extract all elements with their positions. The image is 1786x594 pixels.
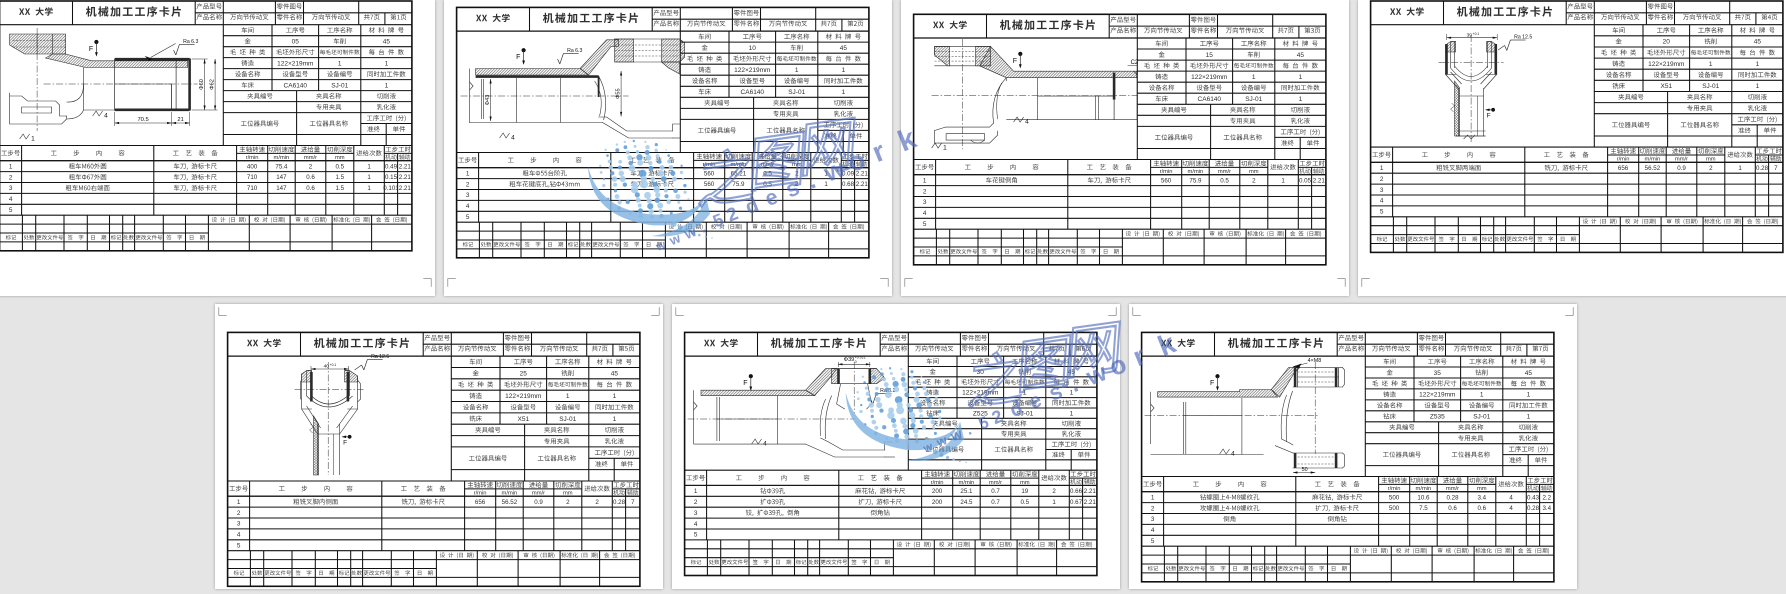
svg-text:3: 3 (9, 185, 13, 192)
svg-text:1: 1 (1480, 392, 1484, 399)
svg-text:Φ62: Φ62 (210, 79, 216, 90)
svg-text:1: 1 (613, 416, 617, 423)
svg-text:7: 7 (631, 499, 635, 506)
svg-text:0.6: 0.6 (307, 185, 316, 192)
svg-text:45: 45 (611, 370, 619, 377)
svg-text:SJ-01: SJ-01 (559, 416, 576, 423)
svg-text:3: 3 (1380, 187, 1384, 194)
svg-text:45: 45 (840, 45, 848, 52)
svg-text:25.1: 25.1 (960, 488, 973, 495)
svg-text:2: 2 (795, 170, 799, 177)
svg-text:2.21: 2.21 (856, 181, 869, 188)
svg-text:2.21: 2.21 (399, 174, 412, 181)
svg-text:0.28: 0.28 (613, 499, 626, 506)
svg-text:147: 147 (277, 174, 288, 181)
svg-text:40: 40 (324, 364, 330, 370)
svg-text:Φ43: Φ43 (485, 95, 491, 106)
svg-text:3: 3 (466, 192, 470, 199)
svg-text:656: 656 (475, 499, 486, 506)
svg-text:mm/r: mm/r (761, 162, 774, 168)
svg-text:m/min: m/min (502, 491, 518, 497)
svg-text:C2: C2 (1131, 60, 1139, 66)
svg-text:1: 1 (1070, 410, 1074, 417)
svg-text:4: 4 (1509, 505, 1513, 512)
svg-text:2.21: 2.21 (399, 163, 412, 170)
svg-text:122×219mm: 122×219mm (278, 60, 314, 67)
svg-text:05: 05 (292, 38, 300, 45)
svg-text:2.21: 2.21 (1313, 177, 1326, 184)
svg-text:45: 45 (1525, 370, 1533, 377)
svg-text:25: 25 (520, 370, 528, 377)
svg-text:1: 1 (824, 170, 828, 177)
svg-text:m/min: m/min (731, 162, 747, 168)
svg-text:4: 4 (694, 521, 698, 528)
svg-text:3: 3 (694, 510, 698, 517)
svg-text:2: 2 (1151, 505, 1155, 512)
svg-text:2: 2 (595, 499, 599, 506)
svg-text:0.5: 0.5 (1020, 499, 1029, 506)
svg-text:CA6140: CA6140 (284, 82, 308, 89)
svg-text:0.15: 0.15 (385, 174, 398, 181)
svg-text:0.5: 0.5 (1220, 177, 1229, 184)
svg-text:75.4: 75.4 (276, 163, 289, 170)
svg-text:0.05: 0.05 (1299, 177, 1312, 184)
svg-text:r/min: r/min (474, 491, 487, 497)
svg-text:1: 1 (1299, 74, 1303, 81)
svg-text:1: 1 (1052, 499, 1056, 506)
svg-text:710: 710 (247, 174, 258, 181)
svg-text:Ra 6.3: Ra 6.3 (567, 48, 582, 54)
svg-text:1.5: 1.5 (336, 185, 345, 192)
svg-text:Z535: Z535 (1430, 414, 1445, 421)
svg-text:+0.021: +0.021 (855, 355, 866, 359)
svg-text:147: 147 (277, 185, 288, 192)
svg-text:1: 1 (1151, 494, 1155, 501)
svg-text:1: 1 (385, 82, 389, 89)
svg-text:SJ-01: SJ-01 (1016, 410, 1033, 417)
svg-text:1: 1 (368, 185, 372, 192)
svg-text:122×219mm: 122×219mm (962, 390, 998, 397)
svg-text:m/min: m/min (1188, 169, 1204, 175)
svg-text:0.66: 0.66 (1070, 488, 1083, 495)
svg-text:CA6140: CA6140 (741, 89, 765, 96)
svg-text:F: F (1487, 113, 1491, 120)
svg-text:19: 19 (1021, 488, 1028, 495)
svg-text:1: 1 (1252, 74, 1256, 81)
svg-text:45: 45 (1068, 369, 1076, 376)
svg-text:1: 1 (385, 60, 389, 67)
svg-text:2: 2 (1052, 488, 1056, 495)
svg-text:0: 0 (855, 360, 857, 364)
svg-text:0.28: 0.28 (1446, 494, 1459, 501)
svg-text:7: 7 (1774, 165, 1778, 172)
svg-text:500: 500 (1389, 505, 1400, 512)
svg-text:Ra 12.5: Ra 12.5 (1514, 35, 1532, 41)
svg-text:75.9: 75.9 (732, 181, 745, 188)
svg-text:2: 2 (923, 188, 927, 195)
svg-text:4: 4 (105, 113, 109, 120)
svg-text:45: 45 (383, 38, 391, 45)
svg-text:mm/r: mm/r (989, 480, 1002, 486)
svg-text:2: 2 (694, 499, 698, 506)
svg-text:SJ-01: SJ-01 (788, 89, 805, 96)
svg-text:30: 30 (977, 369, 985, 376)
svg-text:1: 1 (1756, 83, 1760, 90)
svg-text:r/min: r/min (703, 162, 716, 168)
svg-text:4: 4 (1025, 119, 1029, 126)
svg-text:mm: mm (1706, 157, 1716, 163)
svg-text:r/min: r/min (246, 155, 259, 161)
svg-text:20: 20 (1663, 39, 1671, 46)
svg-text:39: 39 (1467, 33, 1473, 39)
svg-text:5: 5 (923, 221, 927, 228)
svg-text:7.5: 7.5 (1419, 505, 1428, 512)
svg-text:5: 5 (237, 543, 241, 550)
svg-text:45: 45 (1754, 39, 1762, 46)
svg-text:CA6140: CA6140 (1198, 96, 1222, 103)
svg-text:122×219mm: 122×219mm (1419, 392, 1455, 399)
svg-text:122×219mm: 122×219mm (1191, 74, 1227, 81)
svg-text:0.6: 0.6 (1477, 505, 1486, 512)
svg-text:5: 5 (1380, 209, 1384, 216)
svg-text:X51: X51 (1661, 83, 1673, 90)
svg-text:0.9: 0.9 (534, 499, 543, 506)
svg-text:10.6: 10.6 (1417, 494, 1430, 501)
svg-text:2.21: 2.21 (856, 170, 869, 177)
svg-text:4: 4 (1509, 494, 1513, 501)
svg-text:3: 3 (237, 521, 241, 528)
svg-text:4: 4 (511, 135, 515, 142)
svg-text:4: 4 (763, 441, 767, 448)
svg-text:F: F (1210, 380, 1214, 387)
svg-text:0.43: 0.43 (1527, 494, 1540, 501)
svg-text:2: 2 (566, 499, 570, 506)
svg-text:Ra 3.2: Ra 3.2 (880, 388, 895, 394)
svg-text:1: 1 (943, 145, 947, 152)
svg-text:4: 4 (1380, 198, 1384, 205)
svg-text:SJ-01: SJ-01 (1702, 83, 1719, 90)
svg-text:0.28: 0.28 (1756, 165, 1769, 172)
svg-text:500: 500 (1389, 494, 1400, 501)
svg-text:SJ-01: SJ-01 (1245, 96, 1262, 103)
svg-text:mm/r: mm/r (532, 491, 545, 497)
svg-text:1: 1 (923, 177, 927, 184)
svg-text:0.5: 0.5 (763, 181, 772, 188)
svg-text:1: 1 (1023, 390, 1027, 397)
svg-text:1.5: 1.5 (336, 174, 345, 181)
svg-text:mm/r: mm/r (1218, 169, 1231, 175)
svg-text:5: 5 (1151, 538, 1155, 545)
svg-text:1: 1 (237, 499, 241, 506)
svg-text:0.28: 0.28 (1527, 505, 1540, 512)
svg-text:r/min: r/min (1388, 486, 1401, 492)
svg-text:r/min: r/min (1160, 169, 1173, 175)
svg-text:1: 1 (1299, 96, 1303, 103)
svg-text:560: 560 (704, 181, 715, 188)
svg-text:0.101: 0.101 (384, 185, 400, 192)
svg-text:3.4: 3.4 (1477, 494, 1486, 501)
svg-text:1: 1 (1756, 61, 1760, 68)
svg-text:4: 4 (237, 532, 241, 539)
svg-text:0.6: 0.6 (1448, 505, 1457, 512)
svg-text:mm: mm (792, 162, 802, 168)
svg-text:1: 1 (694, 488, 698, 495)
svg-text:1: 1 (338, 60, 342, 67)
svg-text:m/min: m/min (959, 480, 975, 486)
svg-text:0.9: 0.9 (1677, 165, 1686, 172)
svg-text:1: 1 (1527, 414, 1531, 421)
svg-text:1: 1 (9, 163, 13, 170)
svg-text:Ra 12.5: Ra 12.5 (371, 354, 389, 360)
svg-text:X51: X51 (518, 416, 530, 423)
svg-text:200: 200 (932, 488, 943, 495)
svg-text:1: 1 (613, 393, 617, 400)
svg-text:2: 2 (9, 174, 13, 181)
svg-text:5: 5 (694, 532, 698, 539)
svg-text:122×219mm: 122×219mm (505, 393, 541, 400)
svg-text:Ra 6.3: Ra 6.3 (184, 39, 199, 45)
svg-text:1: 1 (1070, 390, 1074, 397)
svg-text:r/min: r/min (1617, 157, 1630, 163)
svg-text:1: 1 (1281, 177, 1285, 184)
svg-text:200: 200 (932, 499, 943, 506)
svg-text:1: 1 (795, 67, 799, 74)
svg-text:Φ60: Φ60 (200, 79, 206, 90)
svg-text:4: 4 (1231, 451, 1235, 458)
svg-text:mm: mm (1477, 486, 1487, 492)
svg-text:+0.1: +0.1 (330, 363, 337, 367)
svg-text:0.7: 0.7 (991, 499, 1000, 506)
svg-text:4: 4 (1151, 527, 1155, 534)
svg-text:SJ-01: SJ-01 (1473, 414, 1490, 421)
svg-text:mm: mm (563, 491, 573, 497)
svg-text:710: 710 (247, 185, 258, 192)
svg-text:0.5: 0.5 (336, 163, 345, 170)
svg-text:5: 5 (466, 214, 470, 221)
svg-text:122×219mm: 122×219mm (734, 67, 770, 74)
svg-text:2.21: 2.21 (399, 185, 412, 192)
svg-text:F: F (516, 54, 520, 61)
svg-text:2: 2 (237, 510, 241, 517)
svg-text:0.68: 0.68 (842, 181, 855, 188)
svg-text:65.21: 65.21 (731, 170, 747, 177)
svg-text:F: F (743, 380, 747, 387)
svg-text:70.5: 70.5 (138, 117, 149, 123)
svg-text:1: 1 (1527, 392, 1531, 399)
svg-text:45: 45 (1297, 52, 1305, 59)
svg-text:4: 4 (9, 196, 13, 203)
svg-text:mm: mm (335, 155, 345, 161)
svg-text:1: 1 (842, 67, 846, 74)
svg-text:0.6: 0.6 (307, 174, 316, 181)
svg-text:21: 21 (178, 117, 184, 123)
svg-text:24.5: 24.5 (960, 499, 973, 506)
svg-text:56.52: 56.52 (1645, 165, 1661, 172)
svg-text:1: 1 (368, 174, 372, 181)
svg-text:560: 560 (704, 170, 715, 177)
svg-text:4: 4 (923, 210, 927, 217)
svg-text:mm: mm (1249, 169, 1259, 175)
svg-text:0.7: 0.7 (991, 488, 1000, 495)
svg-text:560: 560 (1161, 177, 1172, 184)
svg-text:2: 2 (309, 163, 313, 170)
svg-text:1: 1 (1738, 165, 1742, 172)
svg-text:mm/r: mm/r (1675, 157, 1688, 163)
svg-text:F: F (343, 440, 347, 447)
svg-text:1: 1 (1380, 165, 1384, 172)
svg-text:2: 2 (466, 181, 470, 188)
svg-text:1: 1 (1709, 61, 1713, 68)
svg-text:2: 2 (1252, 177, 1256, 184)
svg-text:1: 1 (824, 181, 828, 188)
svg-text:Φ39: Φ39 (844, 357, 855, 363)
svg-text:4×M8: 4×M8 (1308, 358, 1322, 364)
svg-text:656: 656 (1618, 165, 1629, 172)
svg-text:Z525: Z525 (973, 410, 988, 417)
svg-text:mm/r: mm/r (1446, 486, 1459, 492)
svg-text:+0.1: +0.1 (1473, 32, 1480, 36)
svg-text:15: 15 (1206, 52, 1214, 59)
svg-text:5: 5 (9, 207, 13, 214)
svg-text:m/min: m/min (1416, 486, 1432, 492)
svg-text:1: 1 (32, 136, 36, 143)
svg-text:3: 3 (923, 199, 927, 206)
svg-text:3: 3 (1151, 516, 1155, 523)
svg-text:0.67: 0.67 (1070, 499, 1083, 506)
svg-text:Φ55: Φ55 (616, 88, 622, 99)
svg-text:1: 1 (368, 163, 372, 170)
svg-text:0.49: 0.49 (385, 163, 398, 170)
svg-text:F: F (89, 46, 93, 53)
svg-text:2: 2 (1709, 165, 1713, 172)
svg-text:2: 2 (795, 181, 799, 188)
svg-text:2: 2 (1380, 176, 1384, 183)
svg-text:mm: mm (1020, 480, 1030, 486)
svg-text:0.5: 0.5 (763, 170, 772, 177)
svg-text:75.9: 75.9 (1189, 177, 1202, 184)
svg-text:4: 4 (466, 203, 470, 210)
svg-text:1: 1 (566, 393, 570, 400)
svg-text:2.21: 2.21 (1084, 488, 1097, 495)
svg-text:50: 50 (1302, 467, 1308, 473)
svg-text:SJ-01: SJ-01 (332, 82, 349, 89)
svg-text:F: F (1013, 58, 1017, 65)
svg-text:35: 35 (1434, 370, 1442, 377)
svg-text:1: 1 (466, 170, 470, 177)
svg-text:2.21: 2.21 (1084, 499, 1097, 506)
svg-text:56.52: 56.52 (502, 499, 518, 506)
svg-text:2.2: 2.2 (1542, 494, 1551, 501)
svg-text:1: 1 (842, 89, 846, 96)
svg-text:10: 10 (749, 45, 757, 52)
svg-text:0.09: 0.09 (842, 170, 855, 177)
svg-text:3.4: 3.4 (1542, 505, 1551, 512)
svg-text:122×219mm: 122×219mm (1648, 61, 1684, 68)
svg-text:400: 400 (247, 163, 258, 170)
svg-text:m/min: m/min (1645, 157, 1661, 163)
svg-text:r/min: r/min (931, 480, 944, 486)
svg-text:mm/r: mm/r (304, 155, 317, 161)
svg-text:m/min: m/min (274, 155, 290, 161)
